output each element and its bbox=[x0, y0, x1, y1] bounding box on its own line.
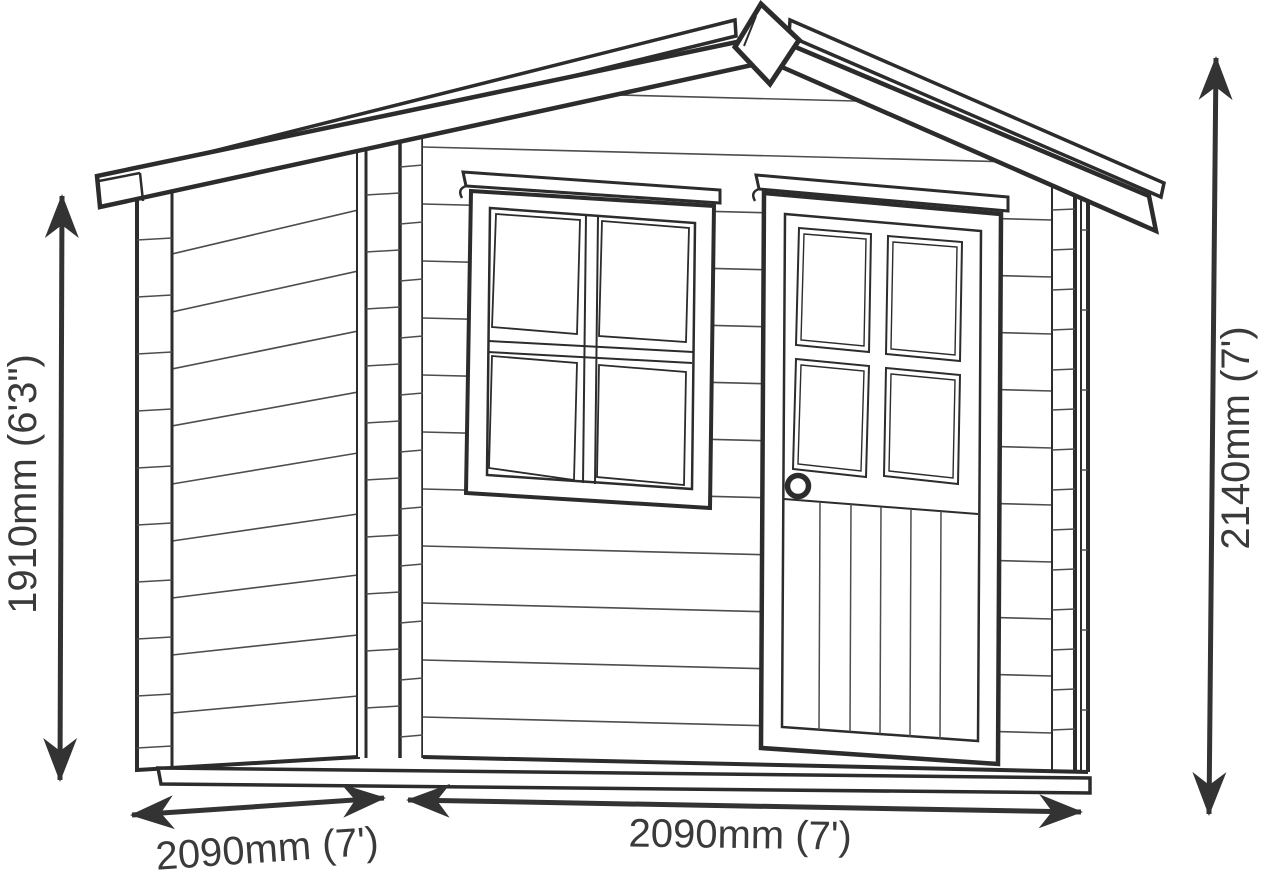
door bbox=[753, 175, 1008, 764]
dimension-arrow-bottom-right-width bbox=[408, 800, 1081, 812]
right-height-label: 2140mm (7') bbox=[1214, 326, 1258, 549]
side-wall bbox=[137, 149, 358, 770]
door-knob bbox=[788, 476, 809, 497]
right-corner-logs bbox=[1052, 186, 1088, 772]
window-outer-frame bbox=[466, 191, 714, 508]
base-bearer bbox=[158, 768, 1090, 793]
bottom-right-width-label: 2090mm (7') bbox=[628, 811, 852, 858]
dimension-arrow-left-height bbox=[60, 196, 62, 780]
dimension-arrow-bottom-left-width bbox=[132, 798, 384, 815]
shed-diagram-page: 1910mm (6'3") 2140mm (7') 2090mm (7') 20… bbox=[0, 0, 1273, 893]
middle-corner-logs bbox=[358, 135, 423, 758]
window bbox=[460, 172, 720, 508]
shed-technical-drawing: 1910mm (6'3") 2140mm (7') 2090mm (7') 20… bbox=[0, 0, 1273, 893]
left-height-label: 1910mm (6'3") bbox=[1, 354, 45, 614]
bottom-left-width-label: 2090mm (7') bbox=[154, 819, 380, 878]
